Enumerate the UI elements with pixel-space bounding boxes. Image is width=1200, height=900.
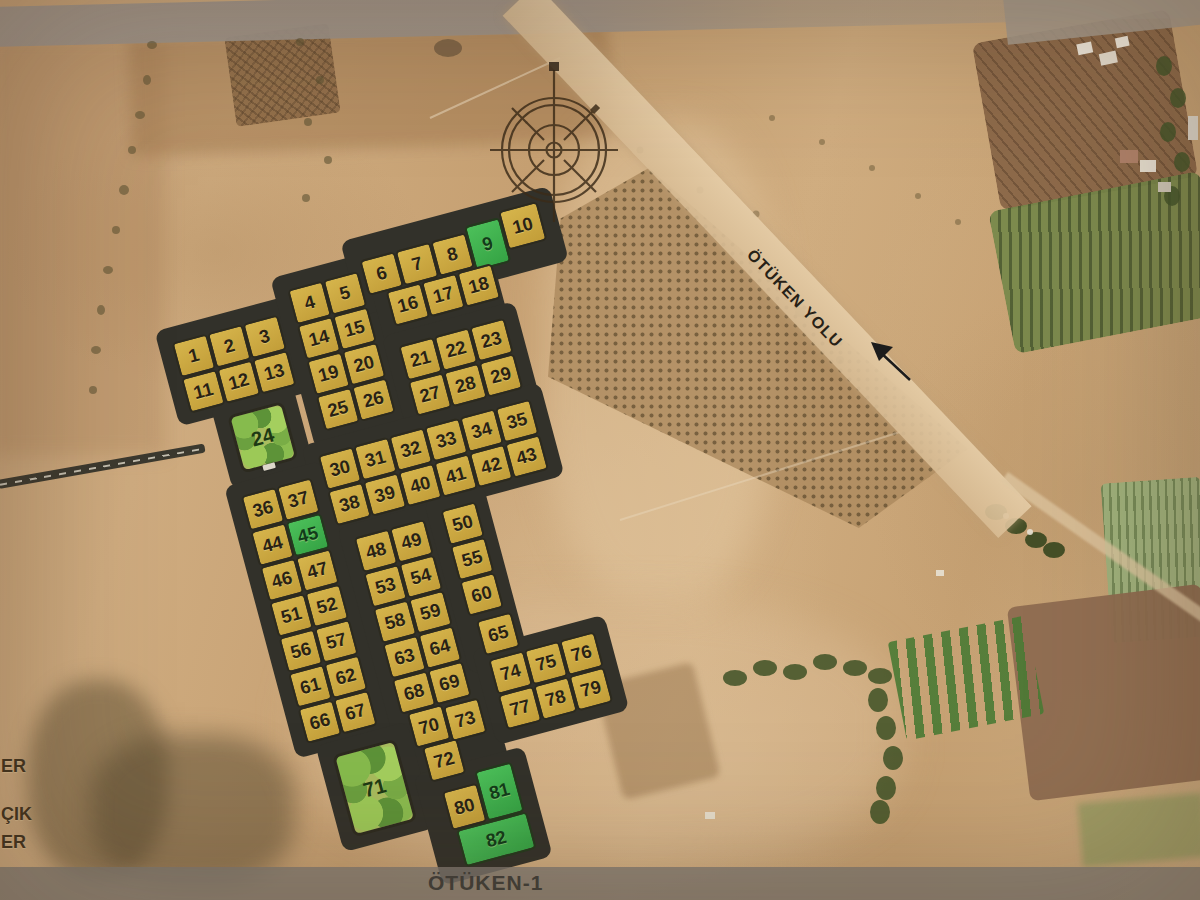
legend-fragment: ÇIK bbox=[1, 804, 32, 825]
road-direction-arrow-icon bbox=[866, 334, 918, 386]
map-title: ÖTÜKEN-1 bbox=[428, 871, 543, 895]
compass-rose-icon bbox=[466, 57, 642, 243]
legend-fragment: ER bbox=[1, 832, 26, 853]
legend-fragment: ER bbox=[1, 756, 26, 777]
satellite-map-view: 1231112134514151920252621222327282930313… bbox=[0, 0, 1200, 900]
map-title-bar bbox=[0, 867, 1200, 900]
